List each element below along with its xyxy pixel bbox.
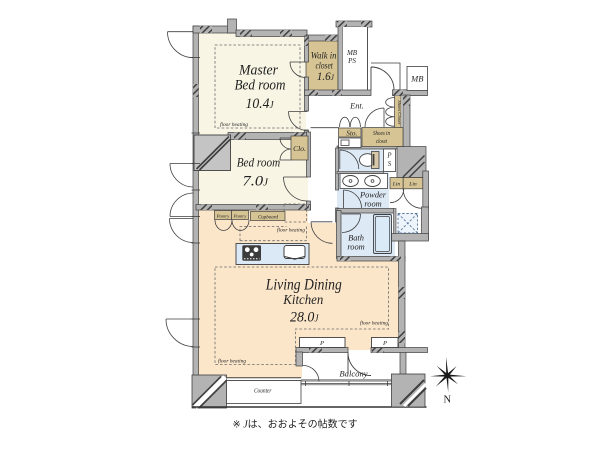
svg-text:Lin: Lin (392, 182, 401, 188)
svg-text:Clo.: Clo. (293, 144, 306, 153)
svg-text:Bath: Bath (348, 234, 364, 243)
svg-text:floor heating: floor heating (360, 320, 388, 327)
svg-text:Sto.: Sto. (346, 129, 357, 138)
svg-text:MB: MB (346, 49, 358, 57)
svg-text:Walk in: Walk in (311, 51, 337, 61)
svg-text:P: P (386, 153, 391, 160)
svg-text:N: N (444, 395, 452, 406)
svg-text:Pantry: Pantry (233, 214, 247, 219)
svg-text:S: S (388, 161, 392, 168)
svg-text:floor heating: floor heating (218, 358, 246, 365)
svg-text:Counter: Counter (254, 388, 272, 395)
svg-text:MB: MB (410, 74, 423, 84)
svg-text:Bed room: Bed room (237, 156, 281, 170)
svg-text:floor heating: floor heating (277, 227, 305, 234)
svg-text:Shoes Closet: Shoes Closet (397, 100, 402, 124)
svg-text:Powder: Powder (359, 191, 387, 200)
svg-text:Lin: Lin (408, 182, 417, 188)
svg-text:Cupboard: Cupboard (258, 216, 279, 221)
svg-text:Balcony: Balcony (339, 369, 367, 379)
svg-text:Bed room: Bed room (235, 78, 286, 94)
svg-text:P: P (319, 340, 324, 347)
svg-text:Kitchen: Kitchen (282, 293, 323, 308)
svg-text:room: room (347, 243, 364, 252)
svg-text:room: room (364, 200, 381, 209)
svg-text:Ent.: Ent. (349, 102, 364, 111)
svg-text:PS: PS (347, 57, 356, 65)
svg-text:floor heating: floor heating (220, 121, 248, 128)
svg-text:Living Dining: Living Dining (265, 277, 342, 294)
svg-text:closet: closet (376, 138, 387, 145)
svg-text:※ Jは、おおよその帖数です: ※ Jは、おおよその帖数です (232, 418, 357, 431)
svg-text:Pantry: Pantry (216, 214, 230, 219)
svg-text:P: P (382, 340, 387, 347)
svg-text:Master: Master (238, 63, 278, 79)
svg-text:Shoes in: Shoes in (373, 130, 391, 137)
